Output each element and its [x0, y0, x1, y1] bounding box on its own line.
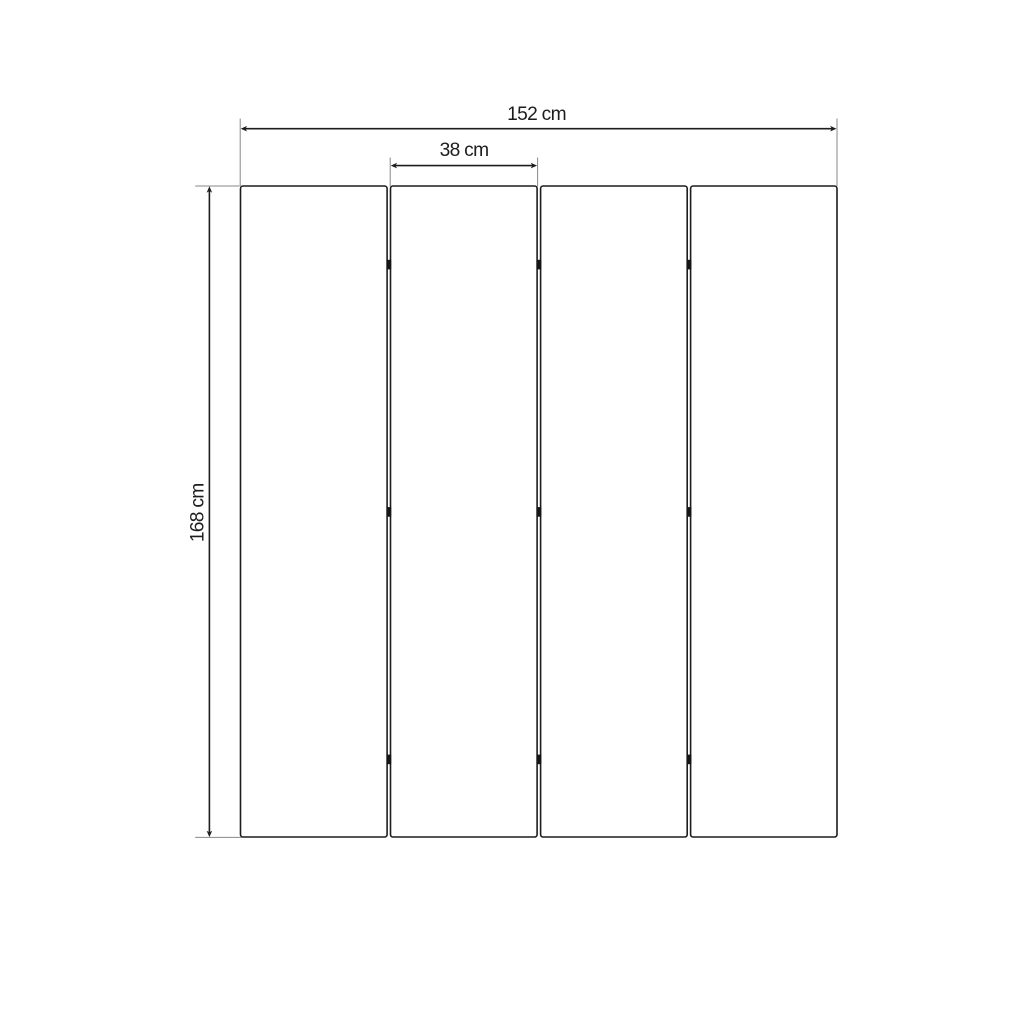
svg-text:168 cm: 168 cm: [187, 483, 208, 542]
svg-text:38 cm: 38 cm: [440, 140, 489, 161]
svg-text:152 cm: 152 cm: [507, 104, 566, 125]
